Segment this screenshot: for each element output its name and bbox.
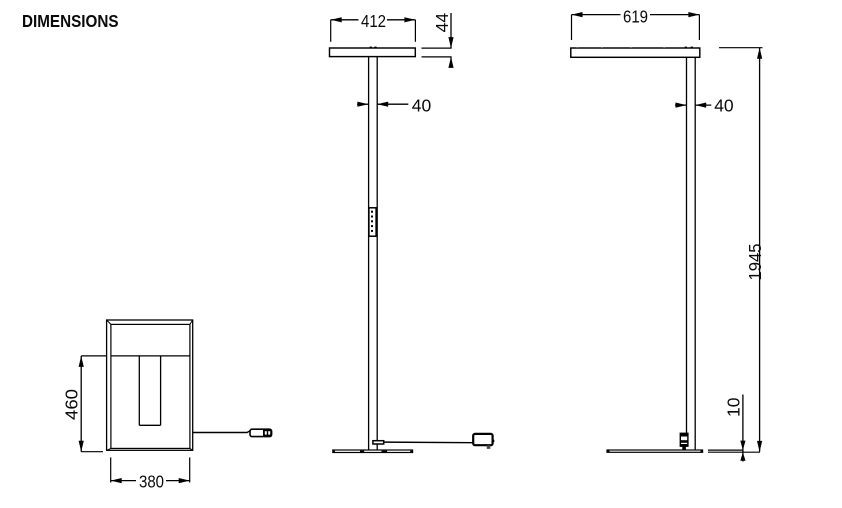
svg-text:DIMENSIONS: DIMENSIONS bbox=[22, 11, 119, 31]
svg-text:10: 10 bbox=[723, 397, 743, 417]
svg-text:380: 380 bbox=[139, 471, 164, 491]
svg-text:1945: 1945 bbox=[745, 244, 765, 281]
svg-text:460: 460 bbox=[62, 389, 82, 420]
svg-text:619: 619 bbox=[623, 6, 648, 26]
svg-text:412: 412 bbox=[361, 11, 386, 31]
svg-text:44: 44 bbox=[432, 13, 452, 33]
svg-text:40: 40 bbox=[412, 96, 432, 116]
svg-text:40: 40 bbox=[714, 96, 734, 116]
